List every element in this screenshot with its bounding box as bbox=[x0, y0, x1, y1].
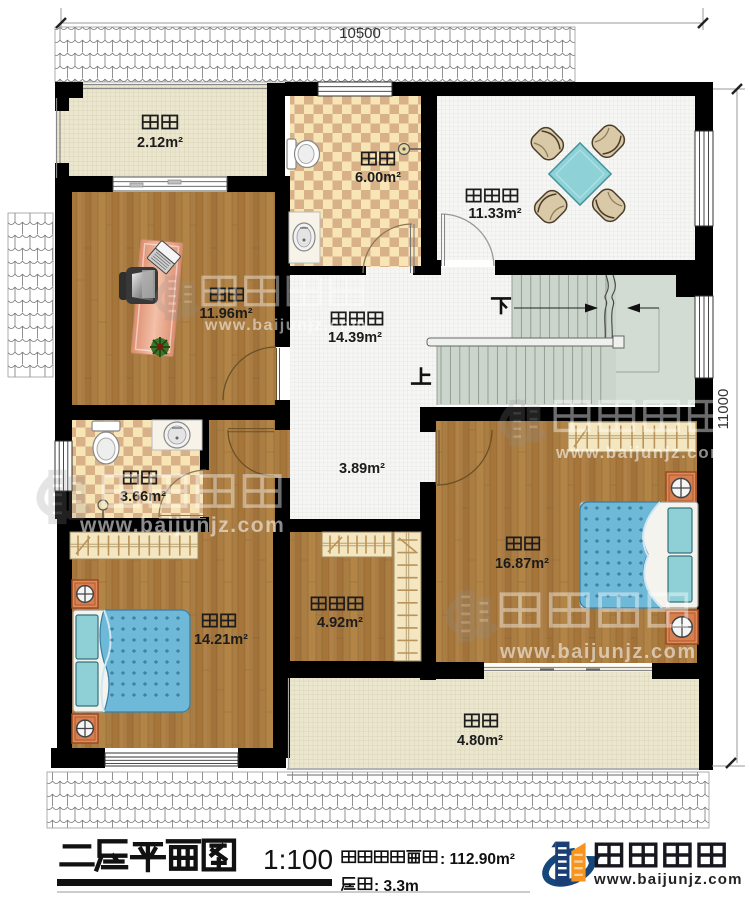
svg-text:2.12m²: 2.12m² bbox=[137, 135, 183, 151]
svg-text:www.baijunjz.com: www.baijunjz.com bbox=[555, 443, 727, 462]
svg-text:: 112.90m²: : 112.90m² bbox=[440, 851, 515, 868]
svg-text:1:100: 1:100 bbox=[263, 844, 333, 875]
svg-text:4.80m²: 4.80m² bbox=[457, 733, 503, 749]
svg-text:www.baijunjz.com: www.baijunjz.com bbox=[204, 317, 367, 334]
svg-text:11.33m²: 11.33m² bbox=[468, 206, 521, 222]
svg-text:11000: 11000 bbox=[715, 389, 732, 430]
svg-text:6.00m²: 6.00m² bbox=[355, 170, 401, 186]
svg-text:www.baijunjz.com: www.baijunjz.com bbox=[593, 871, 743, 888]
svg-text:3.89m²: 3.89m² bbox=[339, 461, 385, 477]
svg-text:10500: 10500 bbox=[339, 25, 381, 42]
svg-text:www.baijunjz.com: www.baijunjz.com bbox=[79, 514, 285, 537]
svg-text:16.87m²: 16.87m² bbox=[495, 556, 549, 572]
svg-text:www.baijunjz.com: www.baijunjz.com bbox=[499, 641, 697, 663]
svg-text:4.92m²: 4.92m² bbox=[317, 615, 363, 631]
svg-text:14.21m²: 14.21m² bbox=[194, 632, 248, 648]
